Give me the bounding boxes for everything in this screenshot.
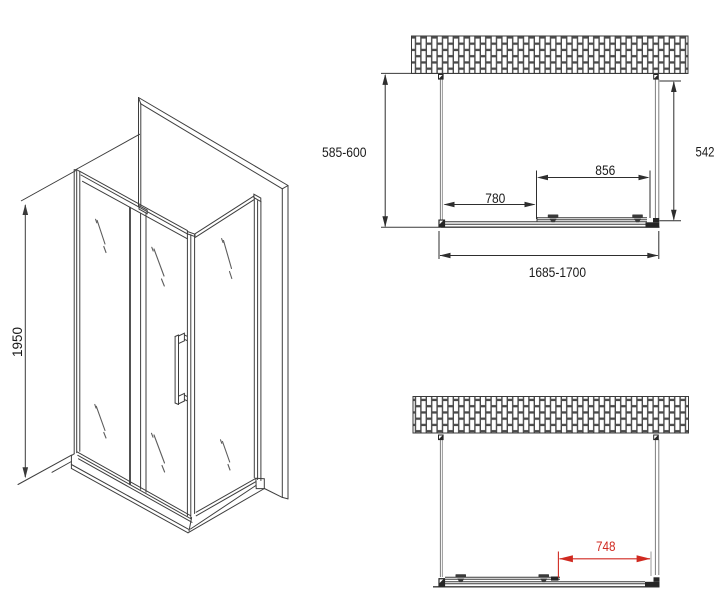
svg-text:1950: 1950 bbox=[9, 327, 25, 357]
svg-text:542: 542 bbox=[696, 144, 715, 160]
svg-text:748: 748 bbox=[596, 538, 616, 554]
svg-text:780: 780 bbox=[485, 190, 505, 206]
svg-text:856: 856 bbox=[595, 162, 615, 178]
svg-text:1685-1700: 1685-1700 bbox=[529, 264, 586, 280]
svg-text:585-600: 585-600 bbox=[322, 144, 367, 160]
